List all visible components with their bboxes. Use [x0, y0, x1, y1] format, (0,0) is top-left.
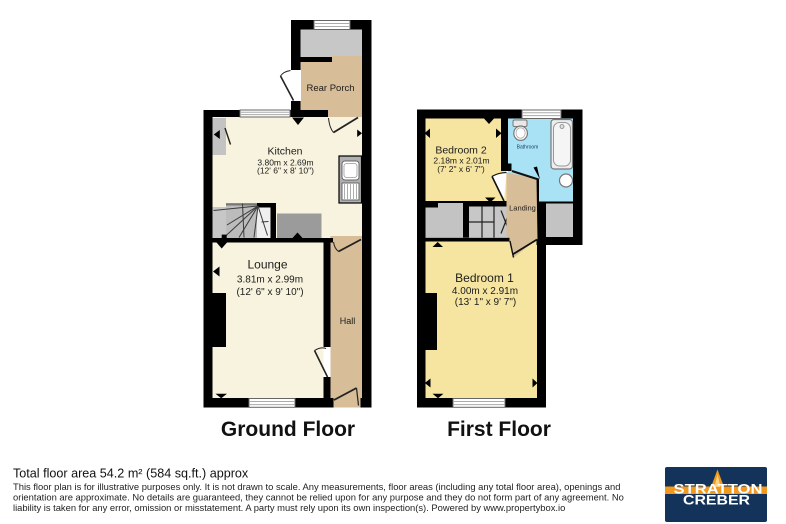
svg-text:This floor plan is for illustr: This floor plan is for illustrative purp… — [13, 481, 620, 492]
svg-text:4.00m x 2.91m: 4.00m x 2.91m — [452, 286, 518, 297]
svg-text:Landing: Landing — [509, 204, 536, 213]
svg-text:Total floor area 54.2 m² (584: Total floor area 54.2 m² (584 sq.ft.) ap… — [13, 467, 249, 481]
svg-text:Bedroom 1: Bedroom 1 — [455, 271, 514, 285]
svg-text:Kitchen: Kitchen — [267, 146, 302, 158]
svg-text:(12' 6" x 9' 10"): (12' 6" x 9' 10") — [236, 287, 303, 298]
svg-text:First Floor: First Floor — [447, 418, 551, 441]
svg-text:(7' 2" x 6' 7"): (7' 2" x 6' 7") — [437, 164, 485, 174]
svg-text:Lounge: Lounge — [247, 258, 287, 272]
svg-text:CREBER: CREBER — [683, 492, 750, 508]
svg-text:liability is taken for any err: liability is taken for any error, omissi… — [13, 502, 565, 513]
svg-text:Hall: Hall — [340, 316, 356, 326]
svg-text:(13' 1" x 9' 7"): (13' 1" x 9' 7") — [455, 297, 517, 308]
svg-text:Rear Porch: Rear Porch — [306, 83, 354, 94]
svg-text:3.81m x 2.99m: 3.81m x 2.99m — [237, 275, 303, 286]
svg-text:(12' 6" x 8' 10"): (12' 6" x 8' 10") — [257, 166, 314, 176]
svg-text:Bathroom: Bathroom — [517, 145, 539, 151]
svg-text:Ground Floor: Ground Floor — [221, 418, 355, 441]
svg-text:orientation are approximate. N: orientation are approximate. No details … — [13, 491, 624, 502]
